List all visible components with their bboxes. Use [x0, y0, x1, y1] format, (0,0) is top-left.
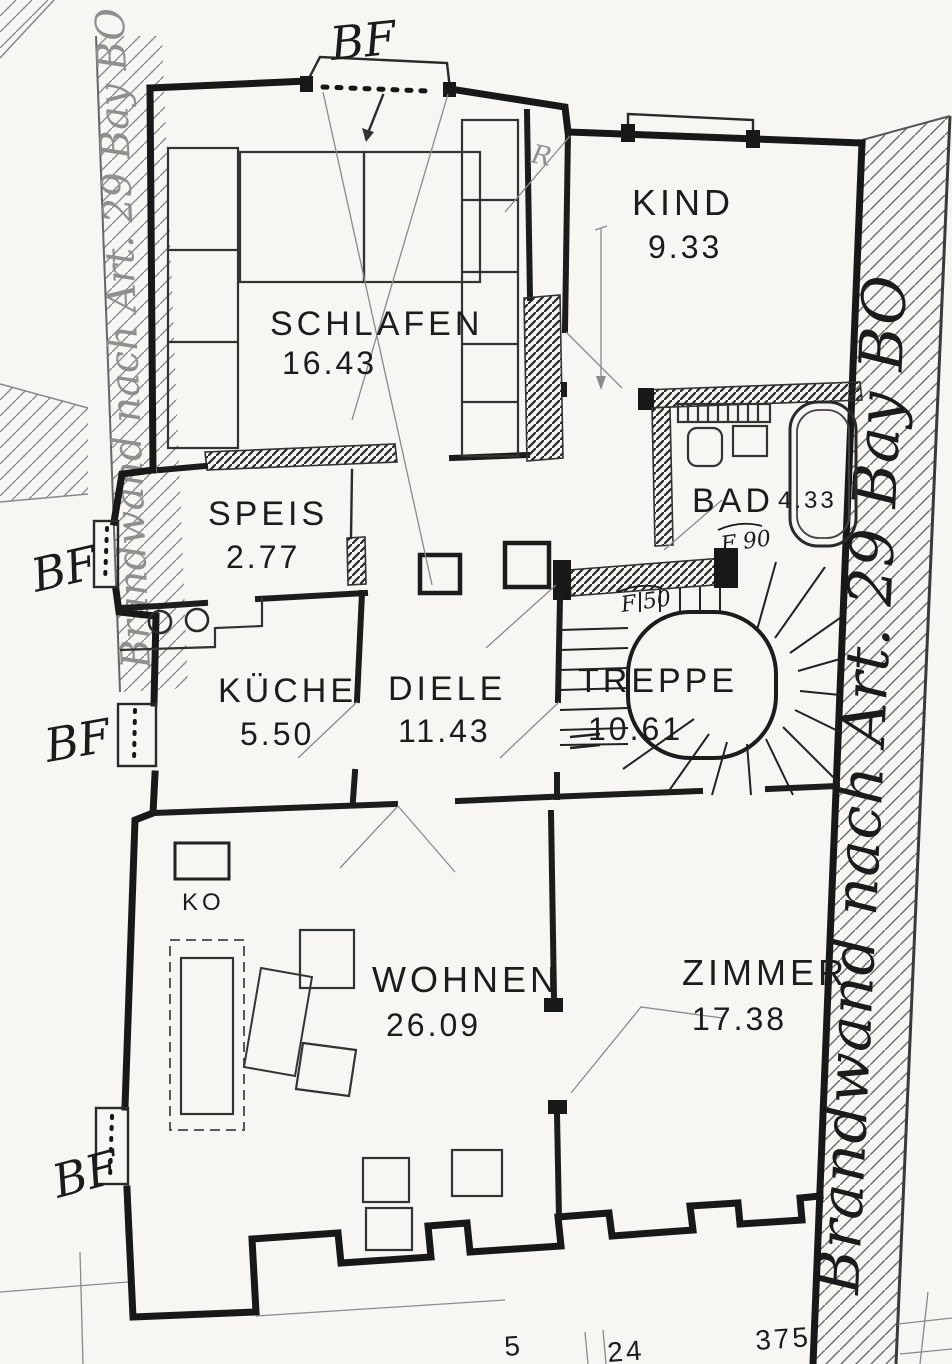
svg-text:9.33: 9.33 [648, 229, 722, 265]
svg-text:16.43: 16.43 [282, 345, 377, 381]
bf-label-top: BF [327, 10, 401, 71]
svg-text:26.09: 26.09 [386, 1007, 481, 1043]
svg-text:TREPPE: TREPPE [578, 662, 738, 700]
svg-text:KÜCHE: KÜCHE [218, 672, 357, 710]
svg-text:4.33: 4.33 [778, 487, 837, 514]
left-party-wall [150, 88, 153, 470]
ko-label: KO [182, 889, 225, 916]
svg-text:DIELE: DIELE [388, 670, 506, 708]
hatched-pillar [524, 295, 563, 461]
svg-text:SPEIS: SPEIS [208, 495, 328, 533]
svg-text:10.61: 10.61 [588, 711, 683, 747]
floorplan-svg: Brandwand nach Art. 29 Bay BO Brandwand … [0, 0, 952, 1364]
svg-text:5.50: 5.50 [240, 716, 314, 752]
dim-partial: 5 [503, 1330, 524, 1362]
svg-text:2.77: 2.77 [226, 539, 300, 575]
dim-center: 24 [606, 1334, 645, 1364]
svg-text:SCHLAFEN: SCHLAFEN [270, 305, 483, 343]
svg-text:KIND: KIND [632, 182, 734, 223]
svg-text:BAD: BAD [692, 482, 774, 520]
svg-text:WOHNEN: WOHNEN [372, 959, 560, 1000]
svg-text:ZIMMER: ZIMMER [682, 952, 848, 993]
dim-right: 375 [754, 1321, 812, 1356]
svg-text:17.38: 17.38 [692, 1001, 787, 1037]
svg-text:11.43: 11.43 [398, 713, 491, 749]
